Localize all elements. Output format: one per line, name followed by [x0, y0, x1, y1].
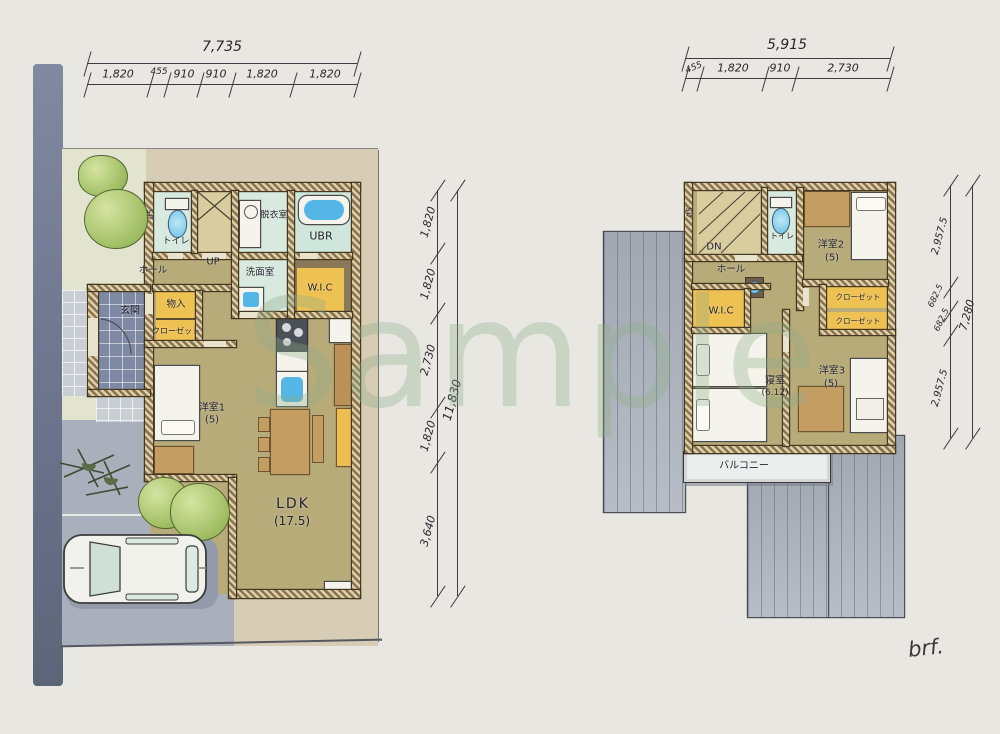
storage-closet-divider	[156, 318, 196, 320]
label-room2-size: (5)	[825, 253, 839, 264]
refrigerator	[330, 316, 354, 342]
door-gap-room1	[204, 341, 226, 347]
label-balcony: バルコニー	[719, 457, 769, 472]
kitchen-stove	[277, 319, 307, 352]
label-closet-2f-1: クローゼット	[836, 292, 881, 303]
dim-seg-2f-t1: 1,820	[717, 62, 749, 75]
wall-2f-left	[685, 183, 692, 453]
kitchen-sink-bowl	[281, 377, 303, 402]
dim-seg-2f-t2: 910	[770, 62, 791, 75]
wall-closet-right	[196, 291, 202, 347]
wall-1f-right	[352, 183, 360, 598]
floor-plan-canvas: トイレ 05 UP 脱衣室 UBR 洗面室 W.I.C ホール 物入 クローゼッ…	[0, 0, 1000, 734]
toilet-tank-2f	[771, 198, 791, 207]
label-wic-1f: W.I.C	[307, 283, 332, 294]
label-storage-1f: 物入	[166, 296, 185, 310]
wall-2f-closet-left	[820, 285, 826, 330]
washer-drum-icon	[244, 205, 258, 219]
wall-2f-bottom	[685, 446, 895, 453]
dim-line-total-top-2f	[685, 58, 890, 59]
dining-chair-1	[259, 418, 269, 431]
wall-2f-top	[685, 183, 895, 190]
label-entrance-1f: 玄関	[120, 302, 140, 317]
door-gap-hall	[145, 294, 153, 314]
dim-tick	[791, 66, 799, 91]
door-gap-2f-room2	[803, 288, 809, 306]
wall-2f-closet-bottom	[820, 330, 895, 335]
dim-tick	[943, 277, 959, 299]
entrance-porch	[96, 396, 145, 422]
dim-seg-1f-r2: 2,730	[418, 343, 439, 377]
dim-tick	[430, 586, 446, 608]
dim-line-seg-top-1f	[87, 84, 357, 85]
dim-seg-1f-r4: 3,640	[418, 514, 439, 548]
dim-tick	[965, 175, 981, 197]
label-bedroom-size: (6.12)	[761, 388, 788, 398]
roof-bottom-right-b	[748, 468, 828, 617]
dim-seg-1f-t0: 1,820	[102, 68, 134, 81]
stove-burner-1	[282, 323, 291, 332]
label-room1-size: (5)	[205, 415, 219, 426]
dim-seg-1f-t4: 1,820	[246, 68, 278, 81]
toilet-tank-1f	[166, 199, 188, 209]
label-room2: 洋室2	[818, 236, 844, 251]
label-dn: DN	[706, 242, 721, 253]
stove-burner-2	[294, 328, 303, 337]
dim-tick	[450, 180, 466, 202]
dim-tick	[450, 586, 466, 608]
door-gap-ldk	[240, 312, 258, 318]
wall-1f-bottom	[232, 590, 360, 598]
vanity-sink-bowl	[243, 292, 259, 307]
label-closet-2f-2: クローゼット	[836, 316, 881, 327]
dim-seg-1f-r0: 1,820	[418, 205, 439, 239]
dim-seg-1f-r1: 1,820	[418, 267, 439, 301]
label-bedroom: 寝室	[765, 372, 785, 387]
desk-room2	[805, 192, 849, 226]
wall-ldk-left	[229, 478, 236, 598]
wall-stair-left	[192, 191, 197, 253]
label-washroom-1f: 洗面室	[246, 264, 275, 278]
label-bath-1f: UBR	[309, 230, 332, 243]
door-gap-toilet	[168, 253, 183, 259]
dim-seg-2f-r3: 2,957.5	[930, 368, 951, 408]
wall-2f-room2-bottom	[803, 280, 888, 286]
door-gap-entrance	[88, 318, 98, 356]
label-hall-2f: ホール	[717, 261, 746, 275]
label-hall-1f: ホール	[139, 262, 168, 276]
label-window-2f: 05	[686, 207, 695, 217]
dim-seg-2f-r2: 682.5	[932, 307, 951, 333]
wall-entrance-bottom	[88, 390, 150, 396]
door-gap-bath	[300, 253, 318, 259]
dim-tick	[196, 72, 204, 97]
dining-bench	[313, 416, 323, 462]
label-room3-size: (5)	[824, 379, 838, 390]
dim-total-right-2f: 7,280	[957, 298, 978, 332]
dim-seg-1f-t2: 910	[174, 68, 195, 81]
label-room3: 洋室3	[819, 362, 845, 377]
label-room1: 洋室1	[199, 399, 225, 414]
wall-2f-wic-right	[745, 289, 750, 330]
entrance-door-arc	[98, 316, 134, 356]
dim-tick	[943, 175, 959, 197]
wall-2f-hall-bottom	[692, 284, 770, 289]
wall-2f-wic-bottom	[692, 328, 750, 333]
door-gap-2f-room3	[783, 332, 789, 352]
dim-seg-1f-t1: 455	[150, 67, 167, 77]
dim-seg-2f-t3: 2,730	[827, 62, 859, 75]
bed-bedroom-1-pillow	[696, 344, 710, 376]
dim-tick	[228, 72, 236, 97]
wall-wet-divider	[288, 191, 294, 318]
dim-line-seg-right-1f	[437, 190, 438, 596]
dim-line-total-top-1f	[87, 63, 357, 64]
tree-2	[84, 189, 148, 249]
artist-signature: brf.	[907, 634, 945, 662]
label-toilet-1f: トイレ	[162, 234, 189, 247]
dim-seg-1f-t5: 1,820	[309, 68, 341, 81]
dim-total-top-1f: 7,735	[202, 39, 242, 55]
label-up: UP	[206, 257, 219, 268]
dim-total-top-2f: 5,915	[767, 37, 807, 53]
stove-burner-3	[283, 338, 291, 346]
label-closet-1f: クローゼット	[152, 326, 200, 337]
dim-tick	[289, 72, 297, 97]
dining-table	[271, 410, 309, 474]
label-ldk: LDK	[276, 496, 310, 512]
dim-seg-2f-r0: 2,957.5	[930, 216, 951, 256]
roof-bottom-right-a	[828, 436, 904, 617]
dim-seg-2f-r1: 682.5	[926, 283, 945, 309]
dim-tick	[430, 303, 446, 325]
bed-room2-pillow	[856, 197, 886, 211]
dim-tick	[965, 428, 981, 450]
dim-tick	[943, 428, 959, 450]
label-wic-2f: W.I.C	[708, 306, 733, 317]
dim-tick	[430, 243, 446, 265]
label-ldk-size: (17.5)	[274, 514, 310, 528]
bed-room1-pillow	[161, 420, 195, 435]
stair-cross-lines	[197, 191, 232, 221]
dim-tick	[430, 452, 446, 474]
label-dressing-1f: 脱衣室	[260, 208, 287, 221]
bed-bedroom-2-pillow	[696, 399, 710, 431]
toilet-bowl-2f	[773, 209, 789, 233]
desk-room1	[155, 447, 193, 473]
grass-icon	[58, 443, 140, 511]
dresser-room3	[851, 359, 888, 432]
dim-seg-1f-r3: 1,820	[418, 419, 439, 453]
road	[33, 64, 63, 686]
car-icon	[60, 528, 212, 610]
site-boundary-top	[62, 148, 378, 149]
wall-1f-hall-bottom	[153, 285, 236, 291]
wall-entrance-top	[88, 285, 150, 291]
wall-1f-top	[145, 183, 360, 191]
dim-seg-1f-t3: 910	[206, 68, 227, 81]
label-toilet-2f: トイレ	[770, 231, 794, 242]
wall-2f-right	[888, 183, 895, 453]
site-boundary-right	[378, 150, 379, 642]
wall-2f-stair-right	[762, 188, 767, 255]
bathtub-water	[304, 200, 344, 220]
desk-room3	[799, 387, 843, 431]
dresser-drawer	[856, 398, 884, 420]
kitchen-counter	[277, 352, 307, 372]
dining-chair-3	[259, 458, 269, 471]
dim-tick	[430, 180, 446, 202]
dining-chair-2	[259, 438, 269, 451]
wall-1f-center-v	[232, 191, 238, 318]
dim-line-seg-top-2f	[685, 78, 890, 79]
roof-left-2f	[604, 232, 685, 512]
